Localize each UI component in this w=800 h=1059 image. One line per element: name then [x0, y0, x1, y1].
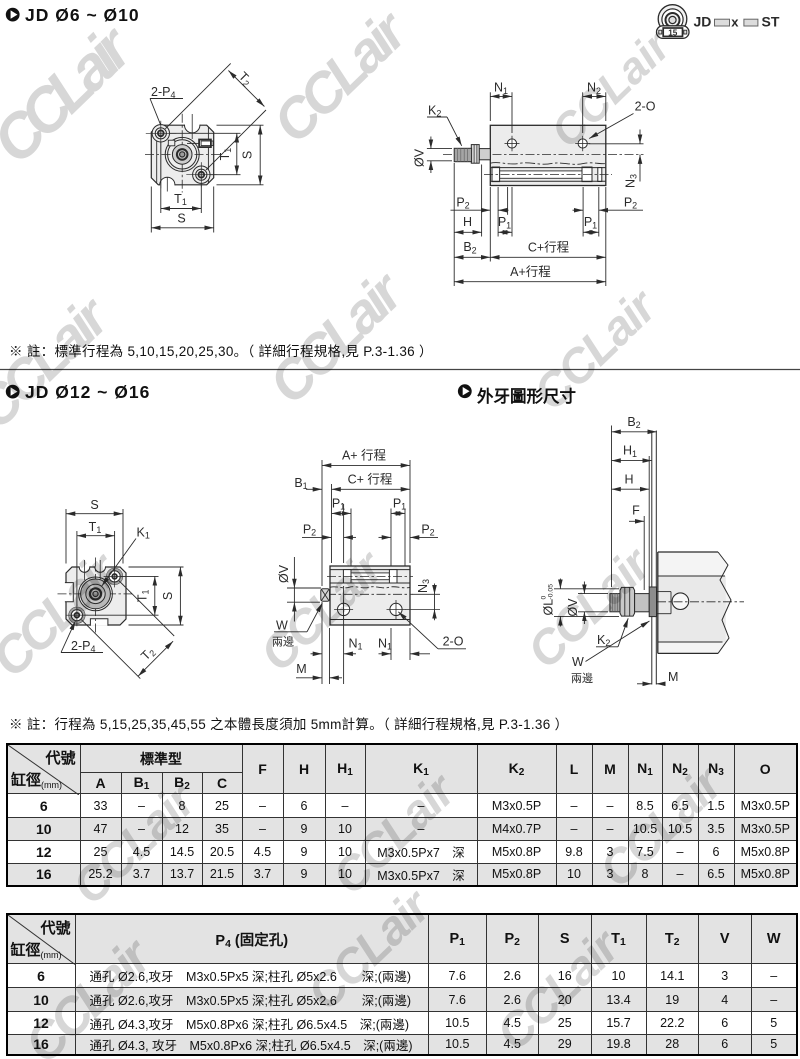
svg-text:CCLair: CCLair [261, 0, 421, 155]
svg-text:CCLair: CCLair [251, 540, 395, 682]
svg-text:CCLair: CCLair [590, 756, 734, 898]
svg-text:CCLair: CCLair [487, 919, 631, 1059]
svg-text:CCLair: CCLair [63, 773, 207, 915]
svg-text:CCLair: CCLair [323, 763, 467, 905]
svg-text:CCLair: CCLair [0, 540, 132, 688]
svg-text:CCLair: CCLair [0, 283, 123, 441]
svg-text:CCLair: CCLair [542, 20, 682, 157]
svg-text:CCLair: CCLair [298, 879, 442, 1021]
svg-text:CCLair: CCLair [524, 279, 668, 421]
svg-text:CCLair: CCLair [518, 537, 662, 679]
svg-text:CCLair: CCLair [257, 258, 417, 416]
svg-text:CCLair: CCLair [14, 926, 165, 1059]
svg-text:CCLair: CCLair [0, 12, 147, 177]
